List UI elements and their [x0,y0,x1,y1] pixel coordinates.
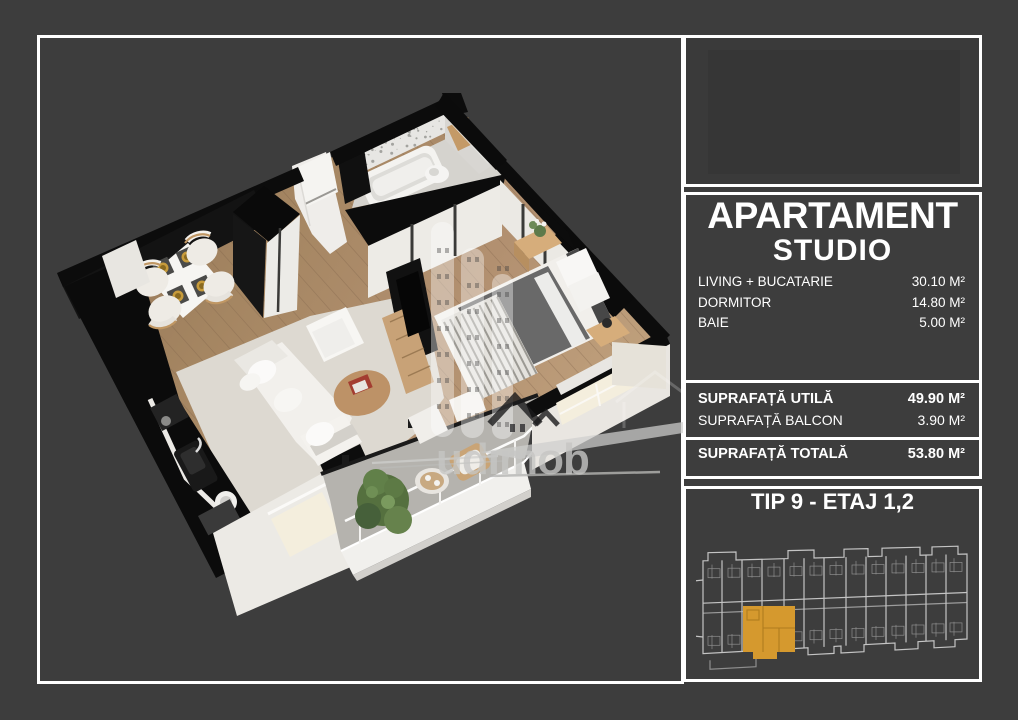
svg-text:udımob: udımob [436,435,589,484]
